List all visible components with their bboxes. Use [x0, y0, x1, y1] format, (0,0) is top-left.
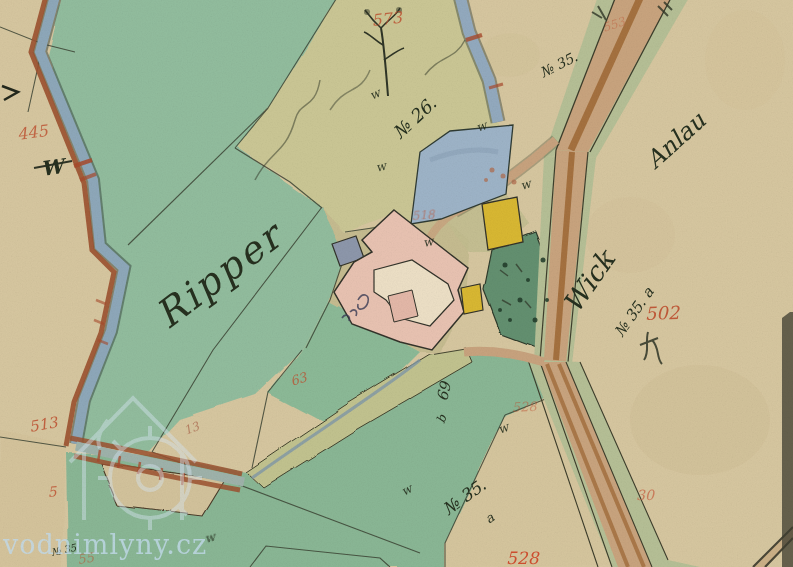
historical-map: Ripper № 26. № 35. Wick Anlau № 35. a № …: [0, 0, 793, 567]
paper-grain-overlay: [0, 0, 793, 567]
map-canvas: Ripper № 26. № 35. Wick Anlau № 35. a № …: [0, 0, 793, 567]
